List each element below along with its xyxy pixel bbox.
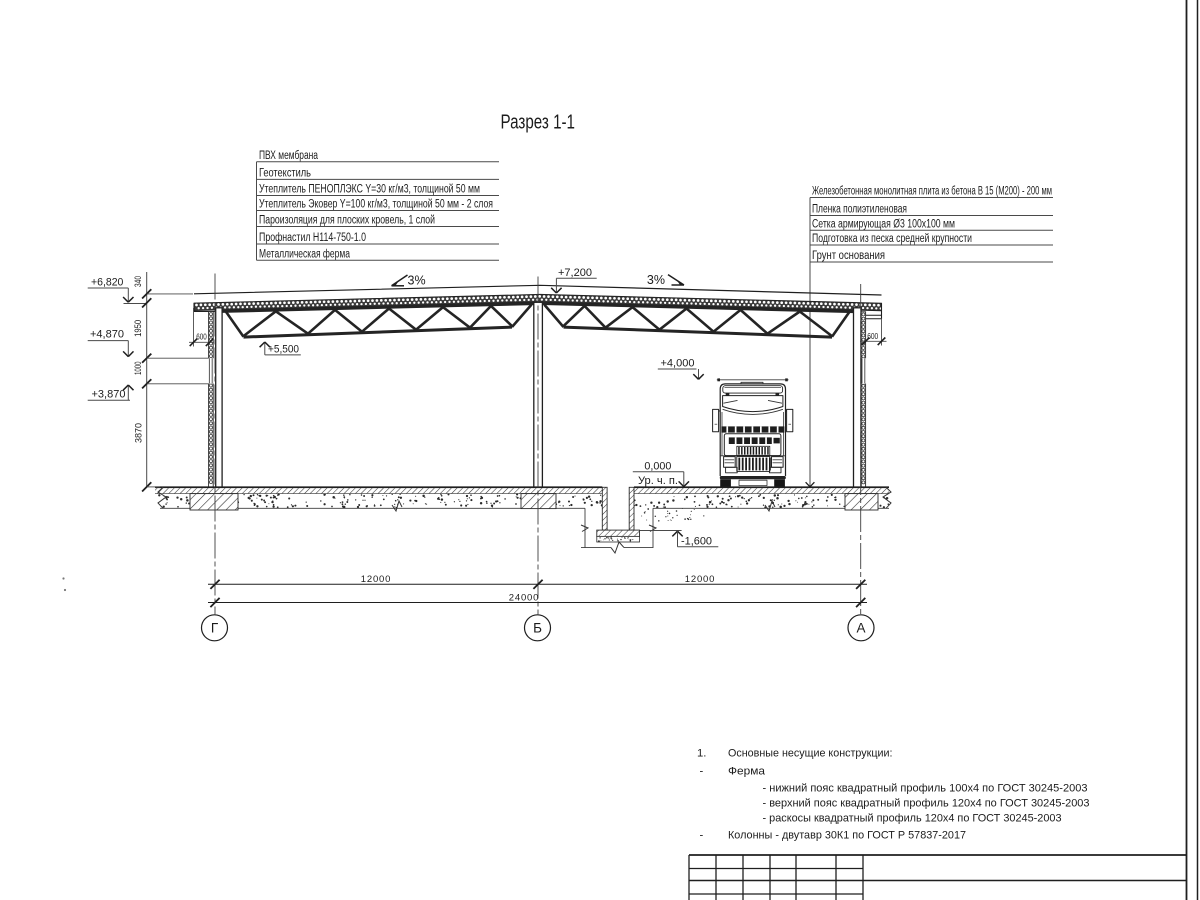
svg-text:1950: 1950 <box>133 320 143 337</box>
svg-text:+5,500: +5,500 <box>268 344 299 356</box>
svg-text:Основные несущие конструкции:: Основные несущие конструкции: <box>728 747 893 759</box>
svg-text:- раскосы квадратный профиль 1: - раскосы квадратный профиль 120х4 по ГО… <box>763 813 1062 825</box>
svg-text:- верхний пояс квадратный проф: - верхний пояс квадратный профиль 120х4 … <box>763 798 1090 810</box>
svg-text:1.: 1. <box>697 747 706 759</box>
svg-text:Геотекстиль: Геотекстиль <box>259 167 311 179</box>
svg-text:Подготовка из песка средней кр: Подготовка из песка средней крупности <box>812 233 972 245</box>
svg-text:А: А <box>856 621 865 636</box>
svg-text:Ур. ч. п.: Ур. ч. п. <box>638 475 678 487</box>
svg-text:Б: Б <box>533 621 542 636</box>
svg-text:0,000: 0,000 <box>644 460 671 472</box>
svg-text:Сетка армирующая Ø3 100х100 мм: Сетка армирующая Ø3 100х100 мм <box>812 218 955 230</box>
svg-text:12000: 12000 <box>361 574 391 585</box>
svg-text:+7,200: +7,200 <box>558 267 592 279</box>
svg-text:3%: 3% <box>408 273 426 287</box>
svg-text:Металлическая ферма: Металлическая ферма <box>259 248 350 260</box>
svg-text:Г: Г <box>211 621 219 636</box>
svg-text:340: 340 <box>133 276 143 287</box>
svg-text:Ферма: Ферма <box>728 765 766 777</box>
svg-text:Утеплитель Эковер Y=100 кг/м3,: Утеплитель Эковер Y=100 кг/м3, толщиной … <box>259 199 493 211</box>
svg-text:3870: 3870 <box>133 423 143 443</box>
svg-text:+4,870: +4,870 <box>90 329 124 341</box>
svg-text:+6,820: +6,820 <box>91 276 123 288</box>
svg-text:- нижний пояс квадратный профи: - нижний пояс квадратный профиль 100х4 п… <box>763 783 1088 795</box>
svg-text:Грунт основания: Грунт основания <box>812 250 885 262</box>
svg-text:Железобетонная монолитная плит: Железобетонная монолитная плита из бетон… <box>812 186 1052 198</box>
svg-text:600: 600 <box>867 331 878 341</box>
svg-text:+3,870: +3,870 <box>92 389 126 401</box>
svg-text:3%: 3% <box>647 273 665 287</box>
svg-text:24000: 24000 <box>509 593 539 604</box>
svg-text:Колонны - двутавр 30К1 по ГОСТ: Колонны - двутавр 30К1 по ГОСТ Р 57837-2… <box>728 830 966 842</box>
svg-text:+4,000: +4,000 <box>661 358 695 370</box>
svg-text:1000: 1000 <box>133 362 143 376</box>
svg-text:600: 600 <box>196 332 207 342</box>
svg-text:-: - <box>700 830 704 842</box>
svg-text:Утеплитель ПЕНОПЛЭКС Y=30 кг/м: Утеплитель ПЕНОПЛЭКС Y=30 кг/м3, толщино… <box>259 184 480 196</box>
svg-text:Профнастил Н114-750-1.0: Профнастил Н114-750-1.0 <box>259 232 366 244</box>
svg-text:12000: 12000 <box>685 574 715 585</box>
svg-text:Пароизоляция для плоских крове: Пароизоляция для плоских кровель, 1 слой <box>259 215 435 227</box>
svg-text:-: - <box>700 765 704 777</box>
svg-text:ПВХ мембрана: ПВХ мембрана <box>259 150 318 162</box>
svg-text:Разрез 1-1: Разрез 1-1 <box>501 112 576 134</box>
svg-text:-1,600: -1,600 <box>681 535 712 547</box>
svg-text:Пленка полиэтиленовая: Пленка полиэтиленовая <box>812 204 907 216</box>
